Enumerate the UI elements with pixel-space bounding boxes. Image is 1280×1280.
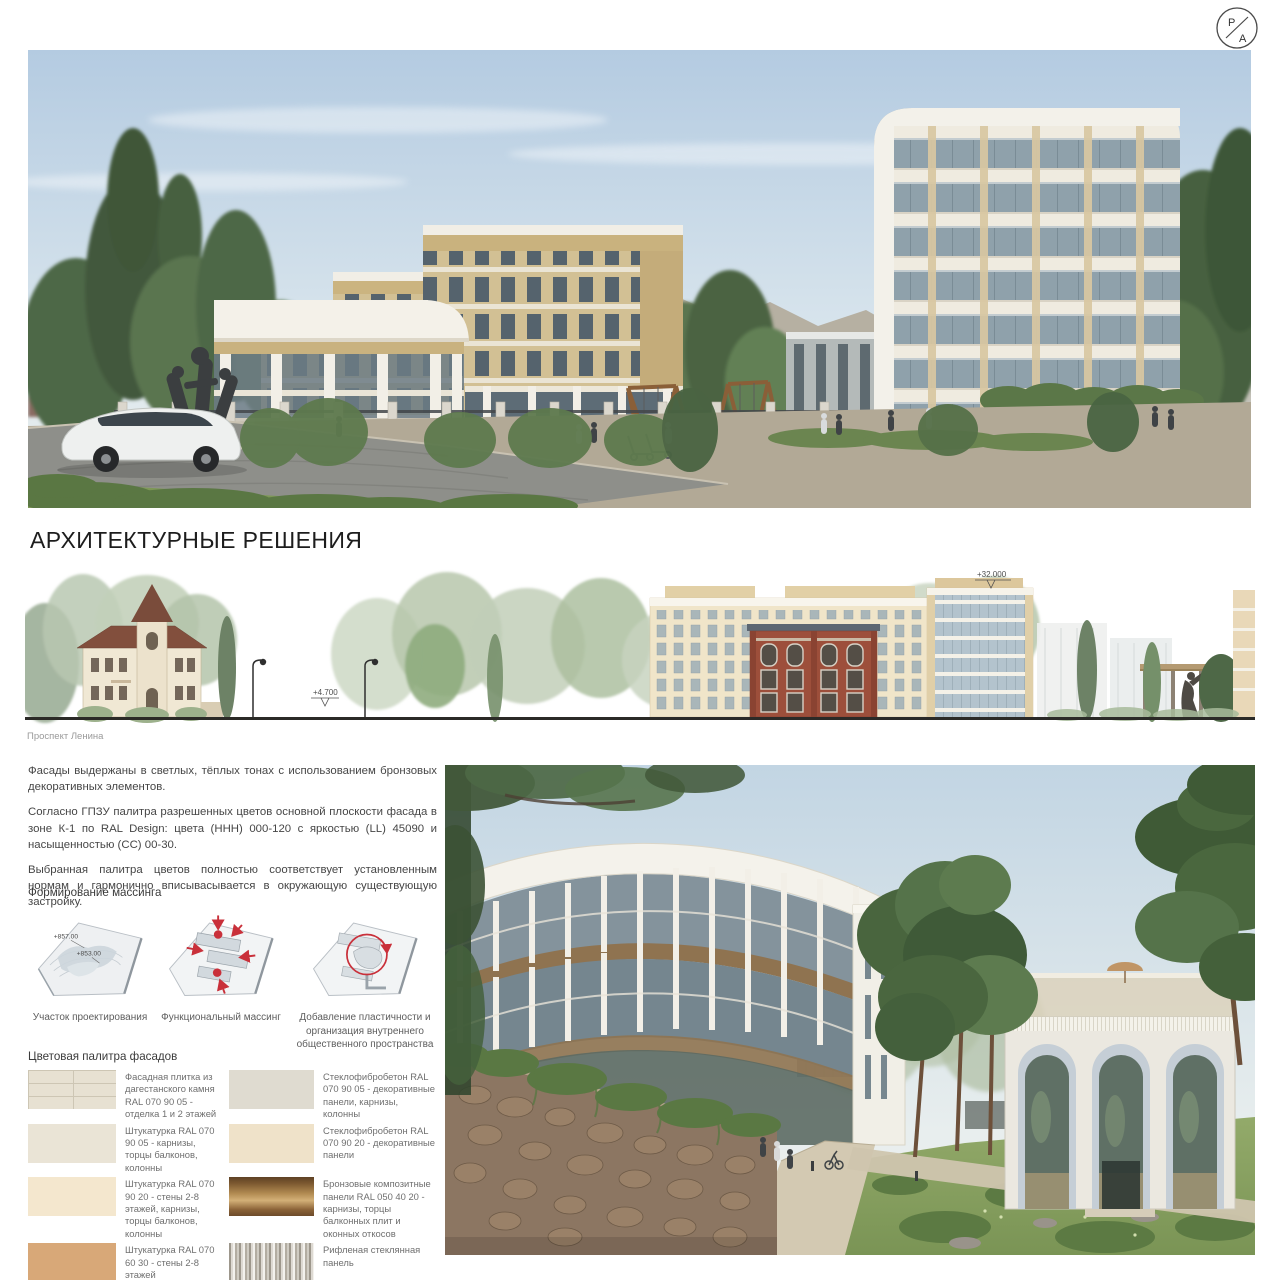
ground-line [25, 717, 1255, 720]
logo-letter-top: Р [1228, 17, 1235, 29]
massing-heading: Формирование массинга [28, 886, 161, 899]
massing-diagram-site: +857.00 +853.00 [29, 906, 151, 1004]
material-swatch [28, 1124, 116, 1163]
architect-logo-icon: Р А [1213, 4, 1261, 52]
material-label: Стеклофибробетон RAL 070 90 05 - декорат… [323, 1070, 435, 1121]
diagram-caption: Добавление пластичности и организация вн… [290, 1011, 440, 1052]
massing-diagrams: +857.00 +853.00 [28, 906, 440, 1004]
material-swatch [229, 1243, 314, 1280]
arched-pavilion [1005, 1017, 1235, 1217]
massing-captions: Участок проектирования Функциональный ма… [28, 1011, 440, 1052]
material-swatch [28, 1070, 116, 1109]
massing-diagram-functional [160, 906, 282, 1004]
cypress-tree [487, 634, 503, 722]
paragraph: Фасады выдержаны в светлых, тёплых тонах… [28, 763, 437, 795]
site-level-label: +853.00 [77, 950, 102, 957]
material-swatch [229, 1124, 314, 1163]
material-label: Штукатурка RAL 070 90 20 - стены 2-8 эта… [125, 1177, 220, 1240]
massing-diagram-plasticity [304, 906, 426, 1004]
page-title: АРХИТЕКТУРНЫЕ РЕШЕНИЯ [30, 527, 362, 554]
paragraph: Согласно ГПЗУ палитра разрешенных цветов… [28, 804, 437, 853]
material-label: Бронзовые композитные панели RAL 050 40 … [323, 1177, 435, 1240]
brick-building-elevation [747, 624, 880, 717]
material-swatch [229, 1177, 314, 1216]
diagram-caption: Функциональный массинг [152, 1011, 290, 1052]
elevation-caption: Проспект Ленина [27, 731, 103, 742]
material-label: Фасадная плитка из дагестанского камня R… [125, 1070, 220, 1121]
level-marker-street: +4.700 [311, 688, 339, 706]
material-label: Штукатурка RAL 070 60 30 - стены 2-8 эта… [125, 1243, 220, 1280]
hero-render [28, 50, 1251, 508]
tall-wing-elevation [927, 578, 1033, 717]
material-swatch [28, 1243, 116, 1280]
material-swatch [28, 1177, 116, 1216]
presentation-board: Р А [0, 0, 1280, 1280]
courtyard-render [445, 765, 1255, 1255]
site-level-label: +857.00 [54, 933, 79, 940]
material-label: Стеклофибробетон RAL 070 90 20 - декорат… [323, 1124, 435, 1175]
cypress-tree [218, 616, 236, 720]
svg-text:+32.000: +32.000 [977, 570, 1007, 579]
material-label: Штукатурка RAL 070 90 05 - карнизы, торц… [125, 1124, 220, 1175]
svg-text:+4.700: +4.700 [313, 688, 338, 697]
material-label: Рифленая стеклянная панель [323, 1243, 435, 1280]
logo-letter-bottom: А [1239, 33, 1247, 45]
facade-color-palette: Фасадная плитка из дагестанского камня R… [28, 1070, 440, 1280]
palette-heading: Цветовая палитра фасадов [28, 1050, 177, 1063]
background-context [1037, 590, 1255, 722]
diagram-caption: Участок проектирования [28, 1011, 152, 1052]
street-elevation-drawing: +4.700 [25, 568, 1255, 726]
material-swatch [229, 1070, 314, 1109]
